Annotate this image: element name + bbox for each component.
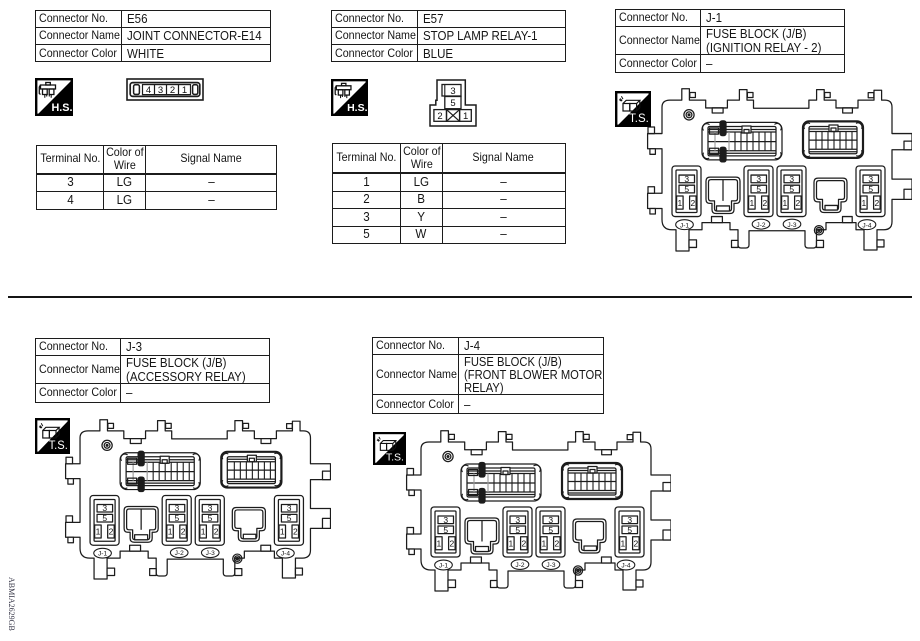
svg-text:1: 1 [182, 85, 187, 96]
svg-text:5: 5 [450, 98, 455, 109]
svg-text:1: 1 [463, 111, 468, 122]
svg-text:3: 3 [450, 86, 455, 97]
svg-text:4: 4 [146, 85, 151, 96]
svg-text:3: 3 [158, 85, 163, 96]
svg-text:2: 2 [437, 111, 442, 122]
svg-text:2: 2 [170, 85, 175, 96]
